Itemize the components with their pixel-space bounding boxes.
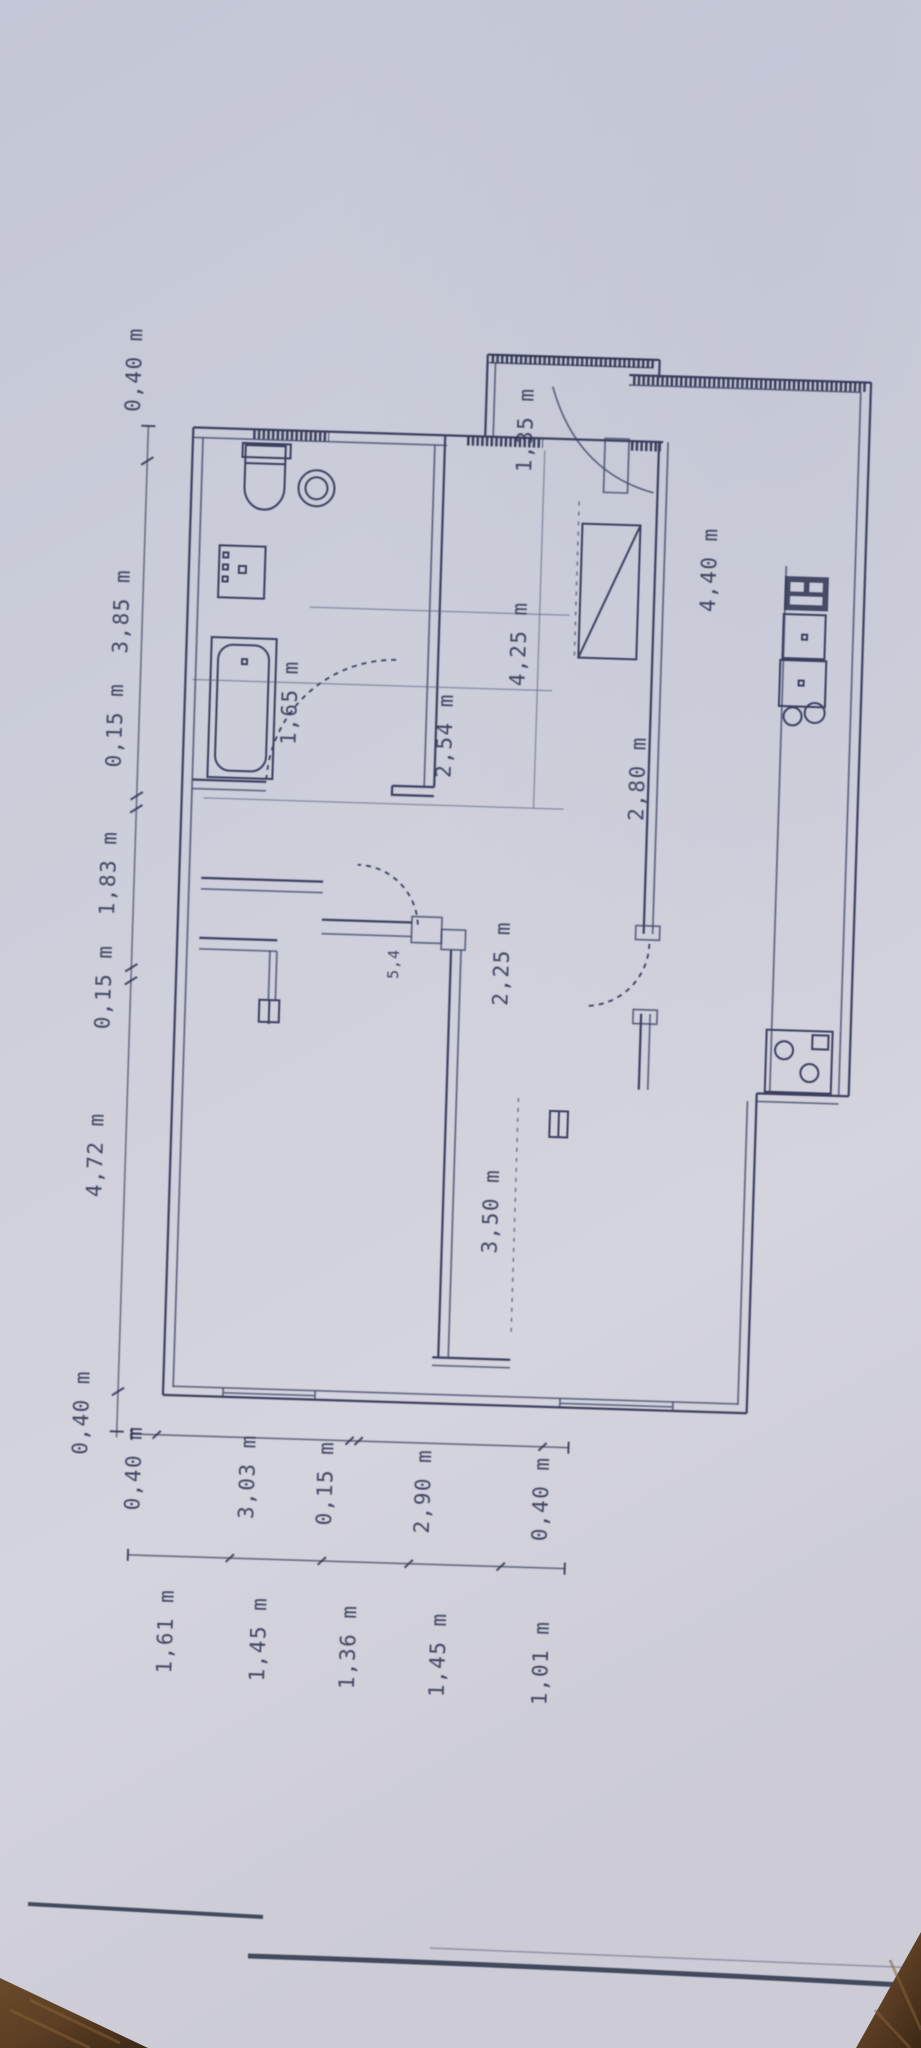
fridge <box>784 576 829 611</box>
dim-left-1: 0,40 m <box>121 327 148 413</box>
dim-bottom-inner-5: 1,01 m <box>527 1620 554 1706</box>
dim-bottom-outer-2: 3,03 m <box>234 1434 261 1520</box>
dim-corridor-width: 2,25 m <box>488 921 515 1007</box>
dim-left-3: 0,15 m <box>102 682 129 768</box>
paper-shading <box>0 0 921 2048</box>
fridge-vent-1 <box>790 582 803 591</box>
dim-bottom-outer-1: 0,40 m <box>120 1425 147 1511</box>
dim-bottom-inner-3: 1,36 m <box>335 1604 362 1690</box>
dim-bottom-outer-5: 0,40 m <box>528 1456 555 1542</box>
floor-plan-photo: 0,40 m 3,85 m 0,15 m 1,83 m 0,15 m 4,72 … <box>0 0 921 2048</box>
dim-bottom-inner-2: 1,45 m <box>245 1596 272 1682</box>
dim-bottom-inner-4: 1,45 m <box>425 1612 452 1698</box>
dim-kitchen-length: 4,40 m <box>696 527 723 613</box>
dim-bath-door: 1,65 m <box>276 660 303 746</box>
dim-bottom-outer-4: 2,90 m <box>410 1448 437 1534</box>
dim-door-note: 5,4 <box>384 949 403 980</box>
dim-left-4: 1,83 m <box>95 830 122 916</box>
dim-left-2: 3,85 m <box>108 568 135 654</box>
fridge-vent-2 <box>809 583 822 592</box>
dim-room-width: 3,50 m <box>478 1168 505 1254</box>
dim-entry-width: 1,35 m <box>512 387 539 473</box>
dim-bottom-inner-1: 1,61 m <box>152 1588 179 1674</box>
dim-bottom-outer-3: 0,15 m <box>312 1440 339 1526</box>
dim-hall-length: 4,25 m <box>505 601 532 687</box>
dim-kitchen-width: 2,80 m <box>624 736 651 822</box>
entry-right-wall <box>659 360 660 378</box>
dim-left-5: 0,15 m <box>90 944 117 1030</box>
dim-hall-width: 2,54 m <box>431 693 458 779</box>
fridge-vent-3 <box>790 596 822 605</box>
dim-left-6: 4,72 m <box>82 1112 109 1198</box>
dim-left-7: 0,40 m <box>68 1370 95 1456</box>
floor-plan-canvas: 0,40 m 3,85 m 0,15 m 1,83 m 0,15 m 4,72 … <box>0 0 921 2048</box>
